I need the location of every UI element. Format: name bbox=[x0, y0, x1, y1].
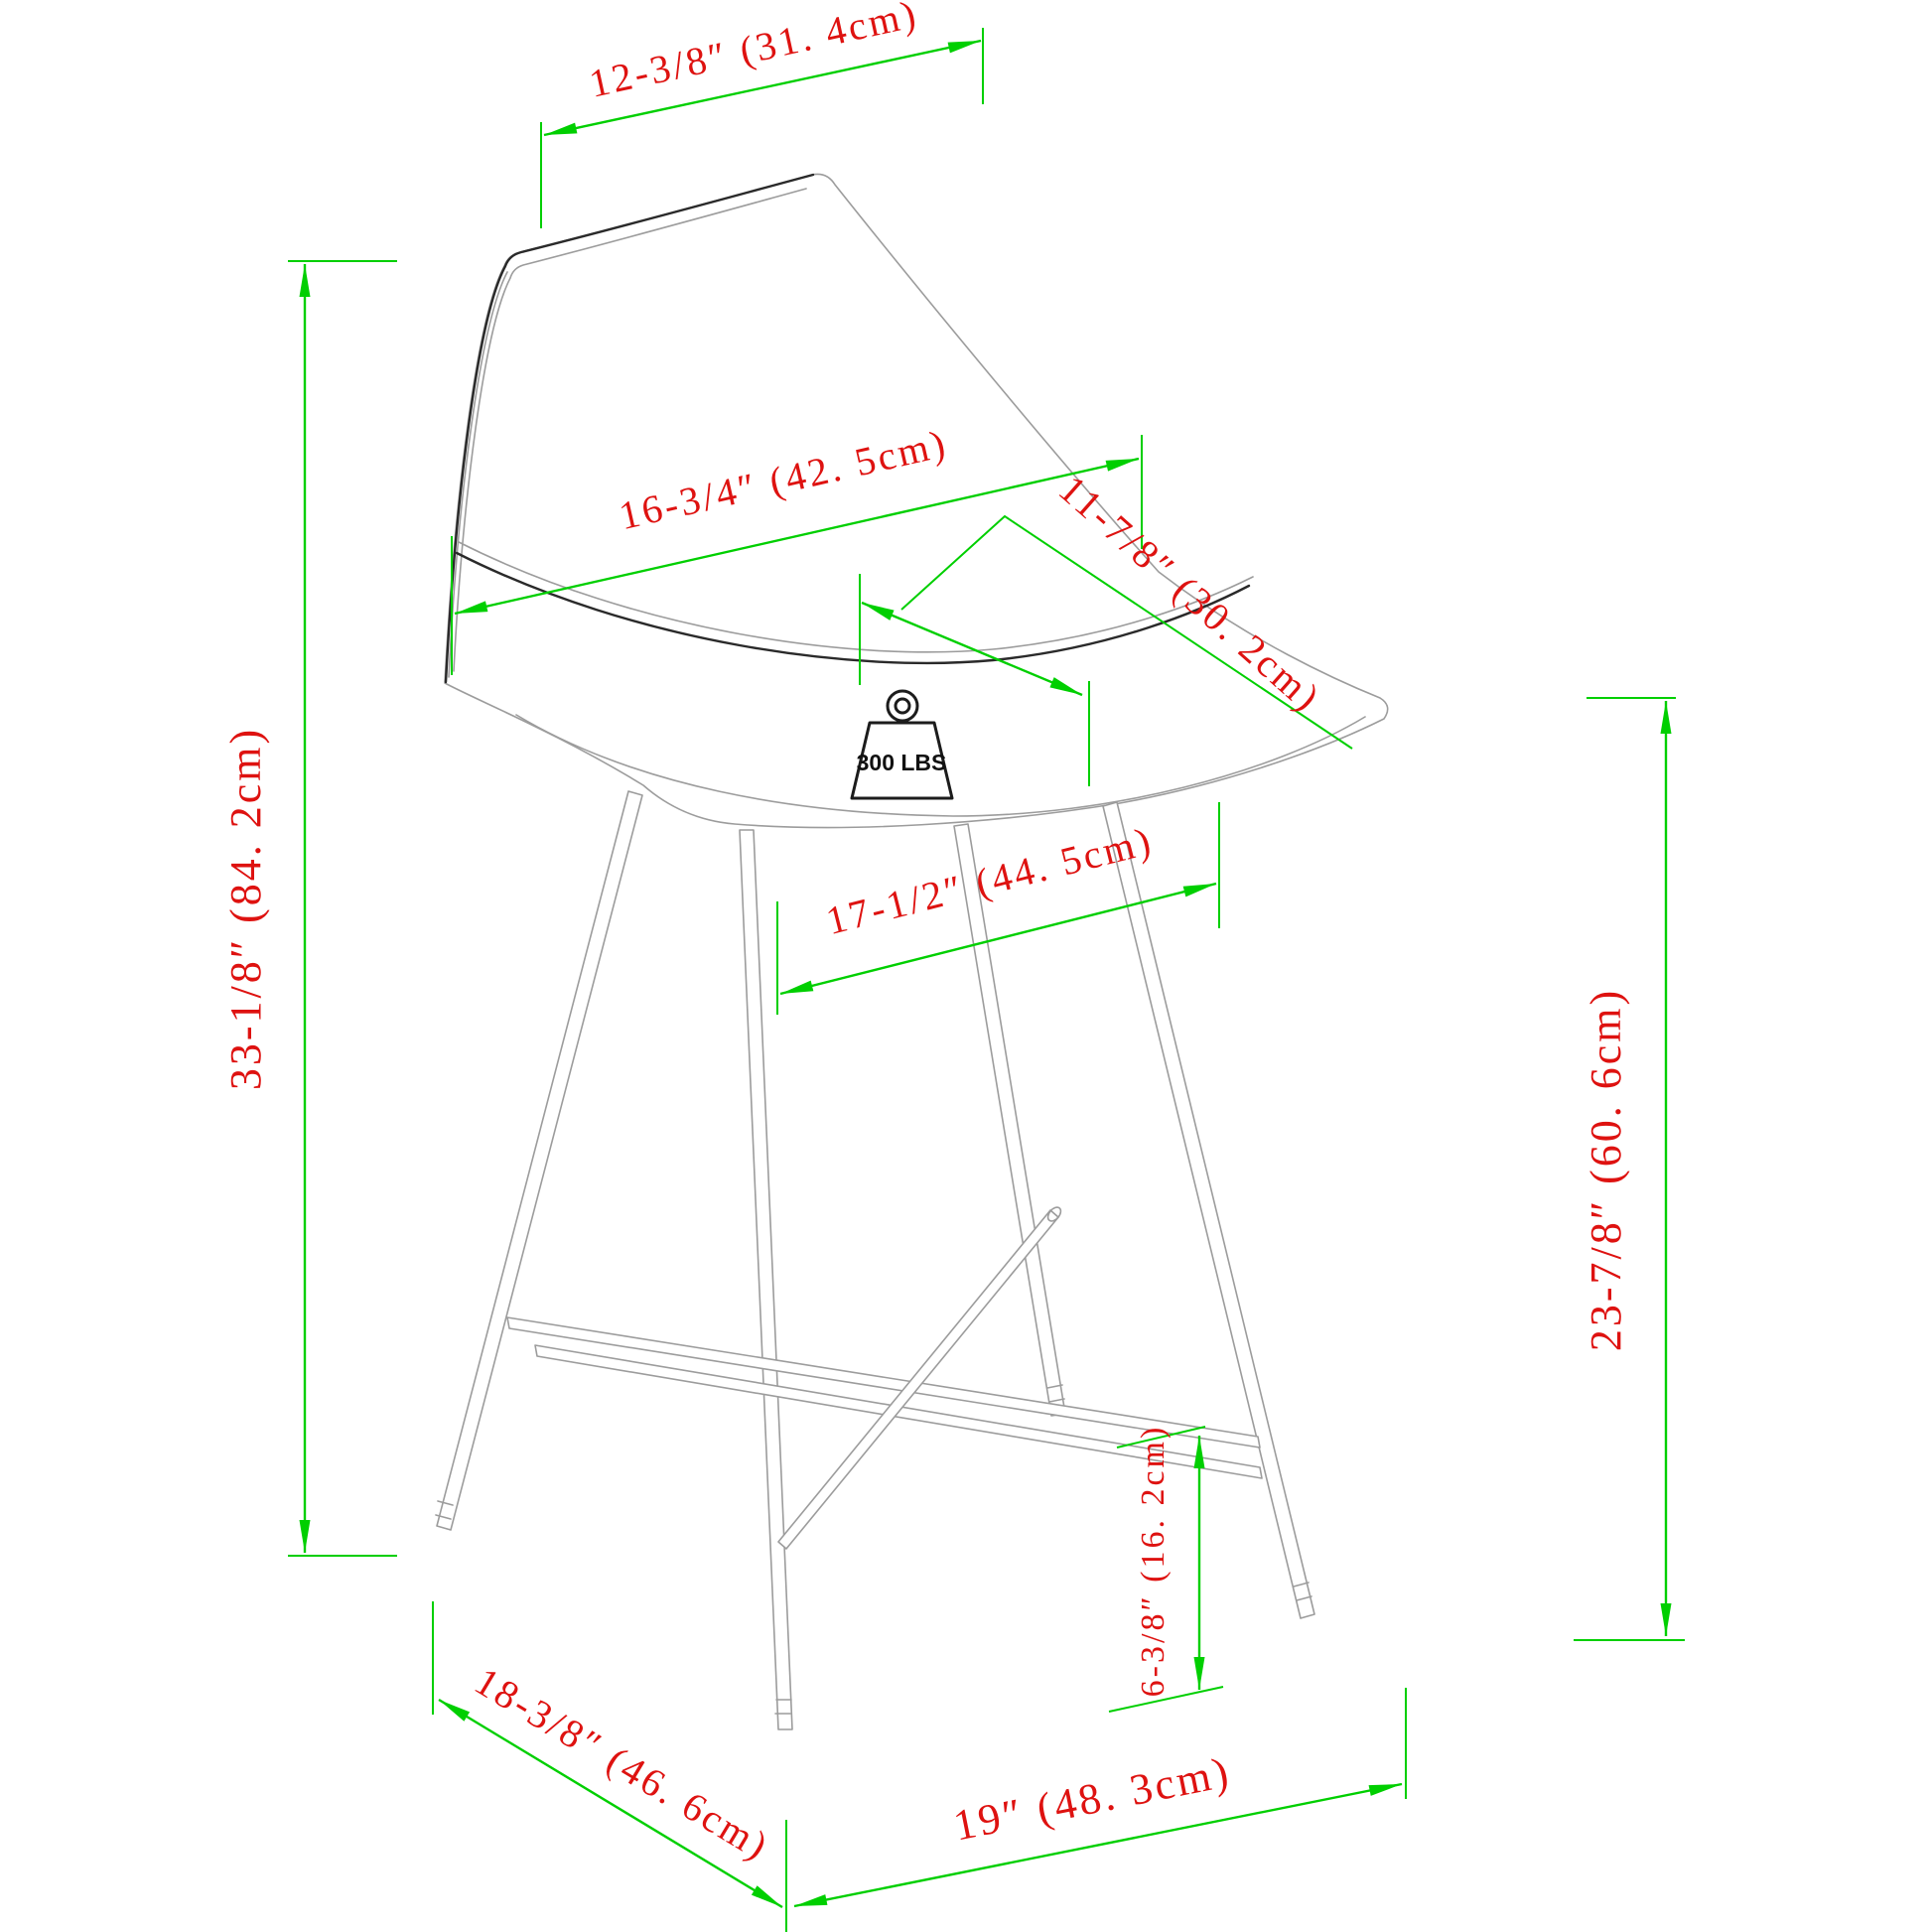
weight-capacity-label: 300 LBS bbox=[857, 750, 947, 775]
weight-handle-inner bbox=[896, 699, 909, 713]
dim-footrest-height-label: 6-3/8″ (16. 2cm) bbox=[1135, 1425, 1172, 1698]
dim-overall-height-label: 33-1/8″ (84. 2cm) bbox=[221, 727, 270, 1090]
diagram-svg: 300 LBS 12-3/8″ (31. 4cm) 16-3/4″ (42. 5… bbox=[0, 0, 1932, 1932]
dim-seat-height-label: 23-7/8″ (60. 6cm) bbox=[1582, 988, 1630, 1351]
background bbox=[0, 0, 1932, 1932]
stool-dimension-diagram: 300 LBS 12-3/8″ (31. 4cm) 16-3/4″ (42. 5… bbox=[0, 0, 1932, 1932]
